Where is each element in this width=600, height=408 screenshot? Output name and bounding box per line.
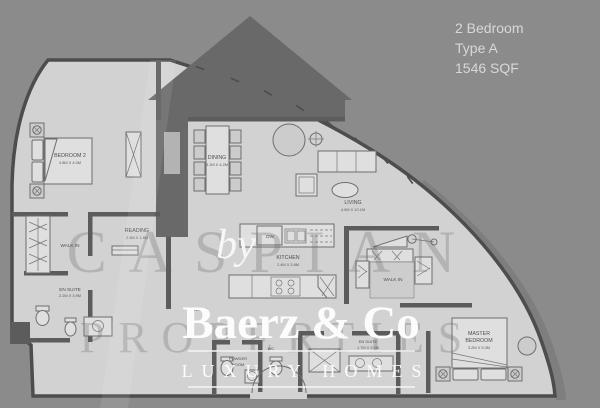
- shelf-icon: [164, 132, 180, 174]
- coffee-table-icon: [332, 183, 358, 198]
- ensuite-left-label: EN SUITE: [59, 287, 81, 292]
- plan-type-text: Type A: [455, 40, 498, 56]
- watermark-brand: Baerz & Co: [182, 297, 420, 349]
- sofa-icon: [318, 151, 376, 172]
- living-dims: 4.0M X 10.1M: [341, 207, 365, 212]
- floor-plan-canvas: BEDROOM 2 4.8M X 4.0M DINING 4.1M X 4.2M…: [0, 0, 600, 408]
- chair-icon: [230, 162, 241, 175]
- chair-icon: [194, 130, 205, 143]
- unit-type-text: 2 Bedroom: [455, 20, 523, 36]
- chair-icon: [194, 178, 205, 191]
- living-label: LIVING: [344, 200, 361, 206]
- walkin-left-closet: [26, 216, 50, 273]
- chair-icon: [194, 146, 205, 159]
- armchair-icon: [296, 174, 317, 196]
- watermark-tagline: LUXURY HOMES: [182, 361, 431, 381]
- dining-dims: 4.1M X 4.2M: [206, 162, 228, 167]
- ensuite-left-dims: 2.2M X 3.9M: [59, 293, 81, 298]
- dining-label: DINING: [208, 155, 227, 161]
- chair-icon: [230, 130, 241, 143]
- bedroom2-dims: 4.8M X 4.0M: [59, 160, 81, 165]
- watermark-by: by: [216, 222, 256, 268]
- bedroom2-label: BEDROOM 2: [54, 153, 86, 159]
- toilet-icon: [36, 306, 49, 326]
- bidet-icon: [65, 318, 76, 336]
- chair-icon: [518, 337, 536, 355]
- floor-plan-page: BEDROOM 2 4.8M X 4.0M DINING 4.1M X 4.2M…: [0, 0, 600, 408]
- chair-icon: [194, 162, 205, 175]
- chair-icon: [230, 146, 241, 159]
- area-text: 1546 SQF: [455, 60, 519, 76]
- round-table-icon: [273, 124, 305, 156]
- chair-icon: [230, 178, 241, 191]
